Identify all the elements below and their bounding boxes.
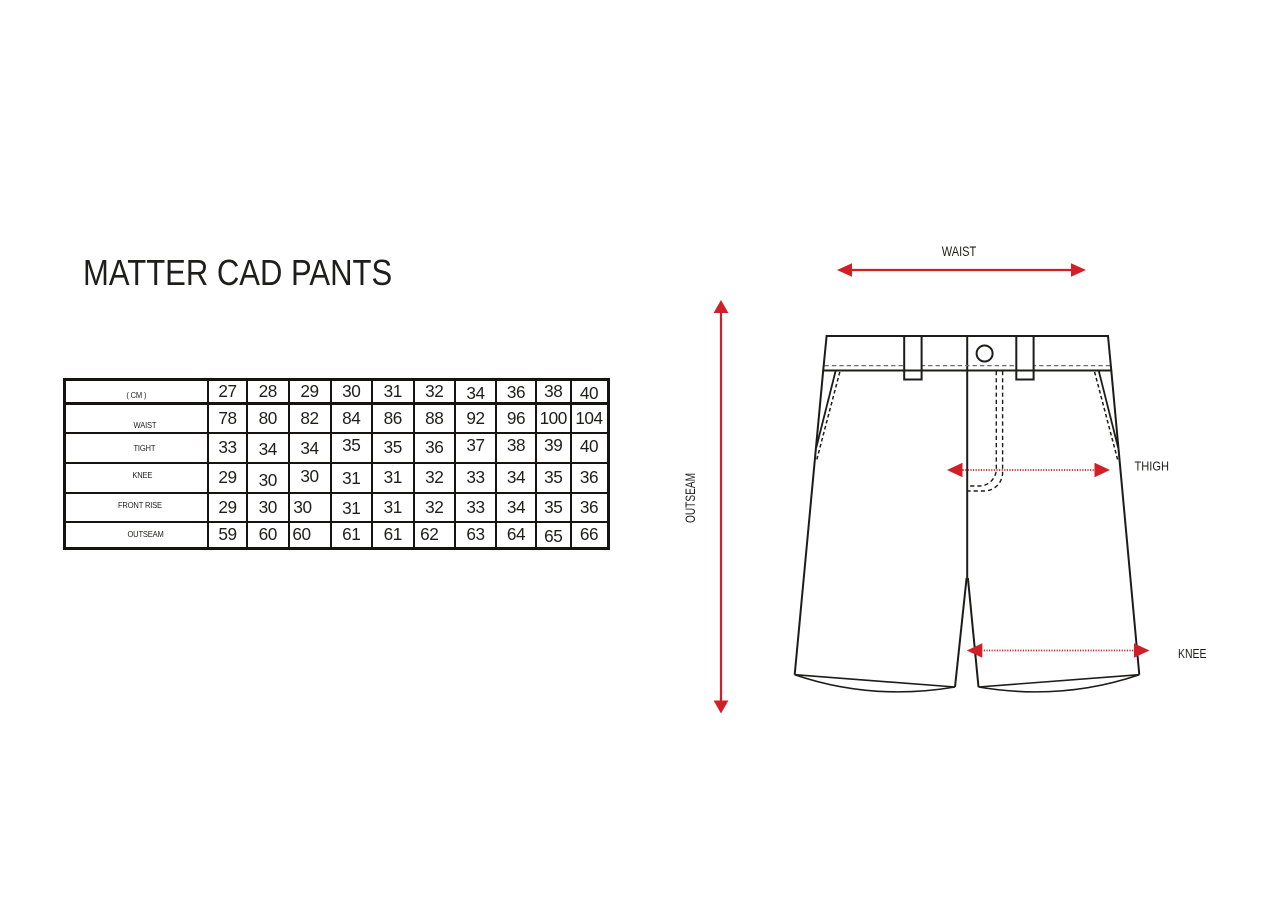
svg-text:WAIST: WAIST <box>942 244 977 259</box>
svg-text:OUTSEAM: OUTSEAM <box>683 473 698 523</box>
svg-text:KNEE: KNEE <box>1178 646 1207 661</box>
svg-text:THIGH: THIGH <box>1135 459 1170 474</box>
